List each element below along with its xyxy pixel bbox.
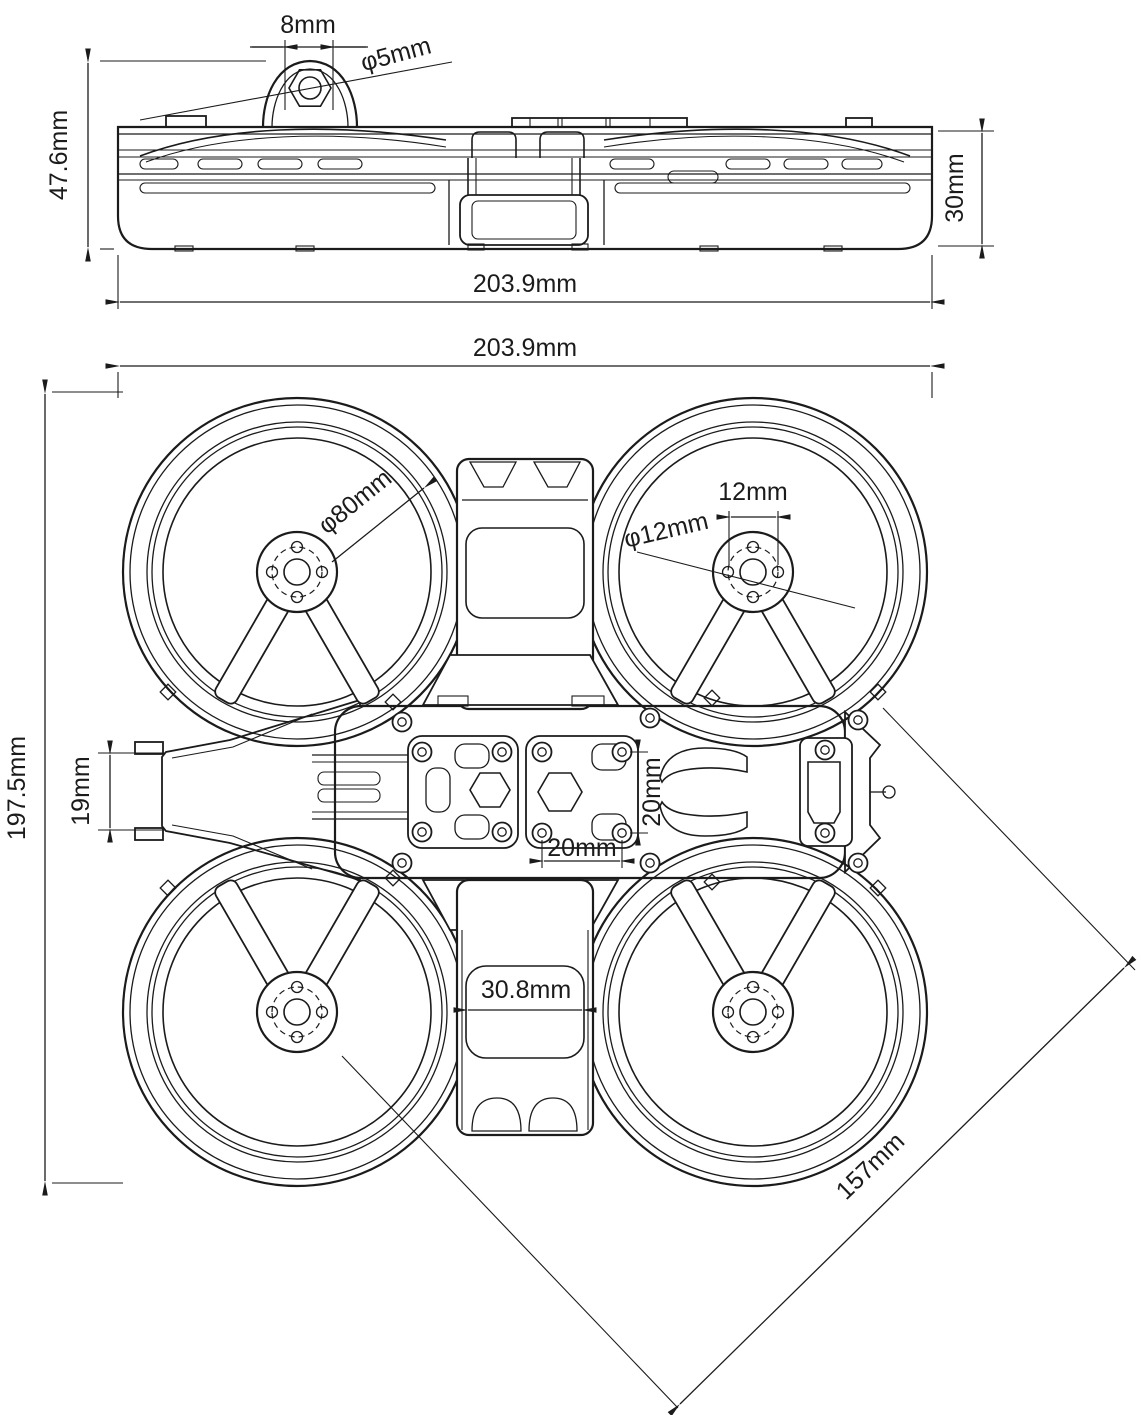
dim-mount-hole-spacing-label: 8mm [280, 11, 336, 39]
dim-overall-length-label: 197.5mm [3, 736, 31, 840]
side-band-slots [140, 159, 910, 193]
dim-camera-mount-height-label: 19mm [67, 756, 95, 825]
stack-plate-left [408, 736, 518, 848]
connector-plate [800, 738, 852, 846]
dim-overall-length: 197.5mm [3, 392, 123, 1183]
dim-duct-inner-diameter-label: φ80mm [313, 464, 397, 540]
dim-top-overall-width: 203.9mm [118, 334, 932, 398]
dim-top-overall-width-label: 203.9mm [473, 334, 577, 362]
dim-side-overall-width: 203.9mm [118, 255, 932, 309]
motor-mount-bottom-left [213, 878, 382, 1052]
motor-mount-top-left [213, 532, 382, 706]
bottom-center-plate [423, 880, 618, 1135]
dim-stack-spacing-vertical-label: 20mm [638, 757, 666, 826]
dim-stack-spacing-horizontal-label: 20mm [547, 834, 616, 862]
motor-mount-top-right [669, 532, 838, 706]
dim-camera-mount-height: 19mm [67, 753, 165, 830]
motor-mount-bottom-right [669, 878, 838, 1052]
top-step-left [166, 116, 206, 127]
dim-duct-height: 30mm [938, 131, 994, 246]
side-view [118, 61, 932, 251]
stack-plate-right [526, 736, 638, 848]
dim-side-overall-width-label: 203.9mm [473, 270, 577, 298]
top-step-right [846, 118, 872, 127]
center-pod-side [449, 132, 604, 245]
stack-cover [512, 118, 687, 127]
dim-center-plate-width-label: 30.8mm [481, 976, 571, 1004]
dim-overall-height-label: 47.6mm [45, 110, 73, 200]
top-view [123, 398, 927, 1186]
frame-dimension-drawing: 8mm φ5mm 47.6mm 30mm 203.9mm [0, 0, 1141, 1415]
dim-mount-hole-diameter-label: φ5mm [358, 31, 435, 77]
dim-motor-hole-spacing-label: 12mm [718, 478, 787, 506]
top-center-plate [423, 459, 618, 709]
dim-overall-height: 47.6mm [45, 61, 266, 249]
technical-drawing-page: 8mm φ5mm 47.6mm 30mm 203.9mm [0, 0, 1141, 1415]
dim-motor-mount-diameter-label: φ12mm [621, 507, 711, 554]
dim-duct-height-label: 30mm [941, 153, 969, 222]
